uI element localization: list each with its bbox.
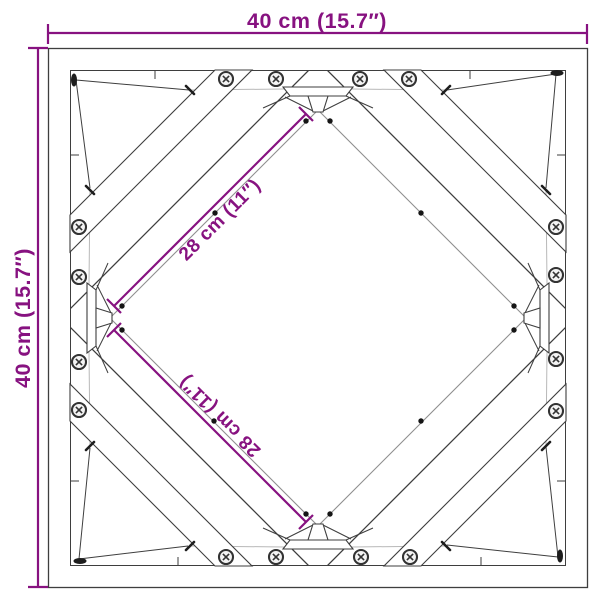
corner-brace <box>384 384 566 566</box>
screw-icon <box>549 404 563 418</box>
diamond-outer-edge <box>61 61 575 575</box>
rivet-dot <box>303 118 308 123</box>
product-dimension-diagram: 28 cm (11″) 28 cm (11″) <box>0 0 600 600</box>
rivet-dot <box>511 327 516 332</box>
diagonal-dimension-upper-label: 28 cm (11″) <box>175 175 265 265</box>
screw-icon <box>219 550 233 564</box>
tick <box>557 155 566 481</box>
screw-icon <box>549 352 563 366</box>
screw-icon <box>72 270 86 284</box>
corner-pin <box>557 550 563 563</box>
rivet-dot <box>119 303 124 308</box>
screw-icon <box>269 550 283 564</box>
screw-icon <box>72 220 86 234</box>
screw-icon <box>403 550 417 564</box>
screw-icon <box>402 72 416 86</box>
corner-brace <box>384 70 566 252</box>
screw-icon <box>353 72 367 86</box>
rivet-dot <box>211 418 216 423</box>
screw-icon <box>549 220 563 234</box>
diagonal-dimension-lower-label: 28 cm (11″) <box>175 371 265 461</box>
rivet-dot <box>303 511 308 516</box>
rivet-dot <box>511 303 516 308</box>
rivet-dot <box>212 210 217 215</box>
screw-icon <box>354 550 368 564</box>
rivet-dot <box>418 418 423 423</box>
corner-braces <box>70 70 566 566</box>
screw-icon <box>269 72 283 86</box>
frame-outer-edge <box>49 49 588 588</box>
height-dimension: 40 cm (15.7″) <box>11 48 48 587</box>
width-dimension-label: 40 cm (15.7″) <box>247 9 387 33</box>
corner-pin <box>71 74 77 87</box>
rivet-dot <box>327 118 332 123</box>
screw-icon <box>72 403 86 417</box>
tick <box>70 155 79 481</box>
table-frame-top-view: 28 cm (11″) 28 cm (11″) <box>0 0 600 600</box>
rivet-dots <box>119 118 516 516</box>
height-dimension-label: 40 cm (15.7″) <box>11 248 35 388</box>
width-dimension: 40 cm (15.7″) <box>48 9 587 44</box>
screw-icon <box>72 355 86 369</box>
screw-icon <box>219 72 233 86</box>
corner-pin <box>74 558 87 564</box>
screw-icon <box>549 268 563 282</box>
corner-pin <box>551 70 564 76</box>
diamond-brace <box>61 61 575 575</box>
rivet-dot <box>327 511 332 516</box>
rivet-dot <box>119 327 124 332</box>
rivet-dot <box>418 210 423 215</box>
diamond-inner-edge <box>110 110 526 526</box>
